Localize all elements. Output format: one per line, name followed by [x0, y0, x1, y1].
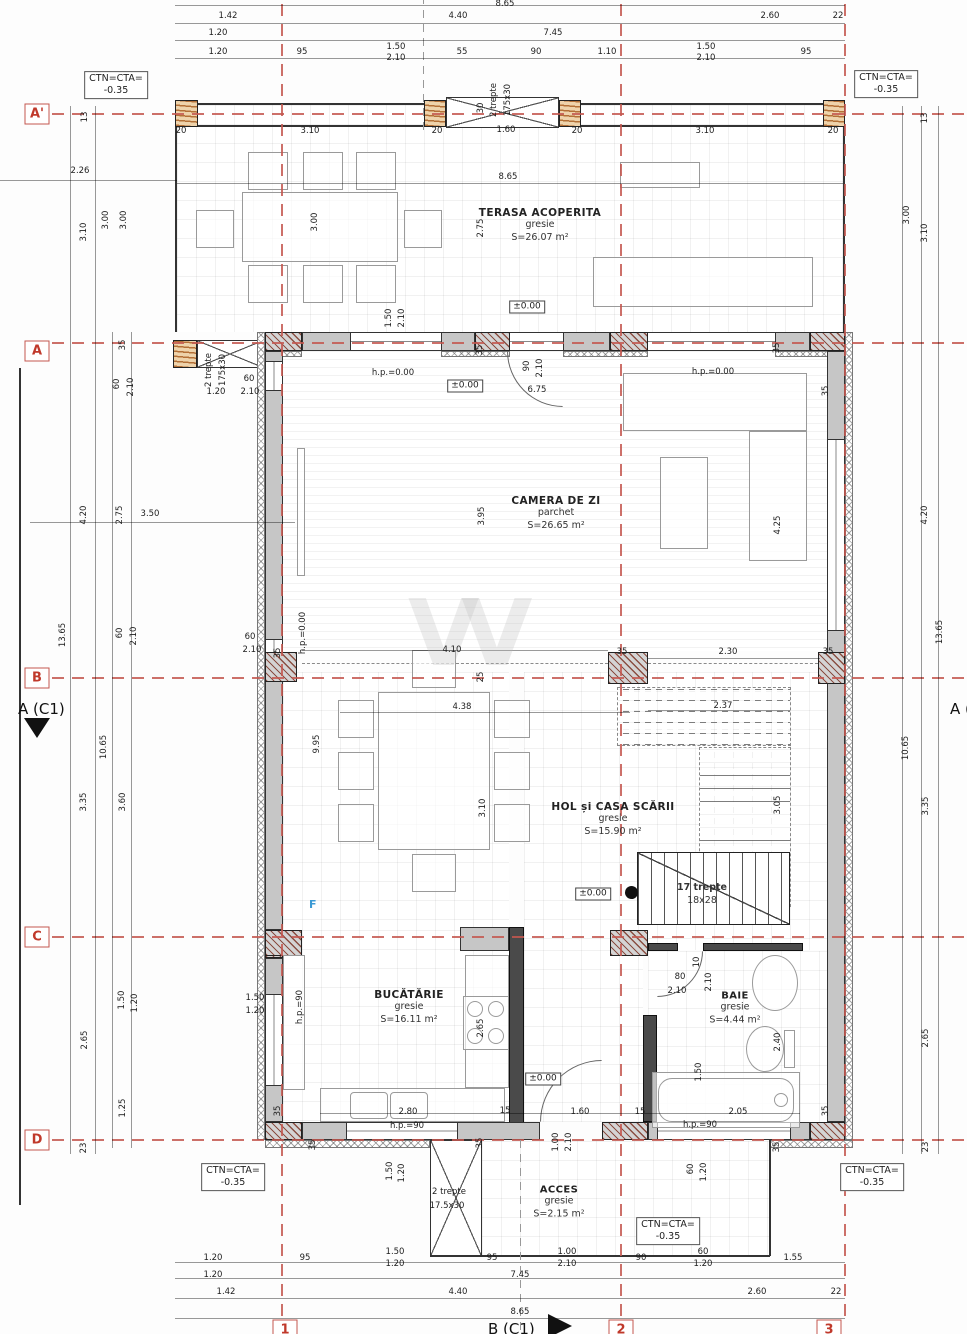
- floor-access: [482, 1141, 769, 1255]
- chair: [404, 210, 442, 248]
- wall-pier: [602, 1122, 648, 1140]
- chair: [338, 804, 374, 842]
- dim-label: 30: [477, 103, 486, 114]
- insulation-strip: [563, 351, 648, 357]
- section-marker-right: A (C1): [950, 700, 967, 718]
- terrace-table: [242, 192, 398, 262]
- dim-line: [648, 658, 820, 659]
- dim-label: 35: [309, 1140, 318, 1151]
- insulation-strip: [770, 1140, 853, 1148]
- dim-label: 2.10: [127, 378, 136, 397]
- dim-label: 2.60: [761, 12, 780, 21]
- dim-line: [175, 23, 845, 24]
- dim-label: 2.10: [536, 359, 545, 378]
- dim-label: 1.42: [217, 1288, 236, 1297]
- dim-line: [340, 712, 630, 713]
- dim-label: 55: [457, 48, 468, 57]
- insulation-strip: [265, 1140, 430, 1148]
- dim-label: 3.95: [478, 507, 487, 526]
- dim-label: 20: [432, 127, 443, 136]
- frame-line: [19, 368, 21, 1205]
- dim-label: 2 trepte: [432, 1188, 466, 1197]
- bath-wall: [648, 943, 678, 951]
- dim-label: 2.65: [922, 1029, 931, 1048]
- dim-line: [902, 106, 903, 1154]
- dim-label: 3.10: [696, 127, 715, 136]
- dim-label: 2.10: [565, 1133, 574, 1152]
- dim-label: 13: [921, 113, 930, 124]
- chair: [196, 210, 234, 248]
- room-label-hall: HOL și CASA SCĂRII gresie S=15.90 m²: [551, 801, 674, 839]
- dim-line: [95, 106, 96, 1154]
- burner: [488, 1028, 504, 1044]
- burner: [488, 1001, 504, 1017]
- level-box-top-right: CTN=CTA=-0.35: [854, 70, 918, 98]
- dim-label: 60: [116, 628, 125, 639]
- dim-label: 2.10: [130, 627, 139, 646]
- window: [827, 440, 845, 630]
- dim-label: 1.20: [386, 1260, 405, 1269]
- wood-post: [173, 340, 197, 368]
- axis-marker-c: C: [25, 927, 50, 948]
- dim-label: 2.10: [705, 973, 714, 992]
- dim-label: 3.00: [903, 206, 912, 225]
- wall-pier: [608, 652, 648, 684]
- room-label-kitchen: BUCĂTĂRIE gresie S=16.11 m²: [374, 989, 444, 1027]
- dim-label: 2.26: [71, 167, 90, 176]
- dim-label: 1.50: [118, 991, 127, 1010]
- section-arrow-left: [24, 718, 50, 738]
- dim-label: 1.10: [598, 48, 617, 57]
- dim-label: 3.50: [141, 510, 160, 519]
- dim-label: 7.45: [544, 29, 563, 38]
- dim-label: 1.50: [387, 43, 406, 52]
- dim-label: 1.20: [204, 1254, 223, 1263]
- wall-segment: [302, 1122, 347, 1140]
- dim-label: 13.65: [936, 620, 945, 644]
- toilet-tank: [784, 1030, 795, 1068]
- dim-line: [175, 40, 845, 41]
- dim-label: 35: [773, 343, 782, 354]
- section-marker-bottom: B (C1): [488, 1320, 535, 1334]
- insulation-strip: [257, 332, 265, 1140]
- dim-label: 1.20: [398, 1164, 407, 1183]
- dim-label: 22: [831, 1288, 842, 1297]
- dim-label: 2.10: [558, 1260, 577, 1269]
- dim-label: 3.35: [80, 793, 89, 812]
- room-label-bath: BAIE gresie S=4.44 m²: [709, 991, 760, 1028]
- dim-label: 1.20: [246, 1007, 265, 1016]
- dim-label: 3.60: [119, 793, 128, 812]
- dim-label: 1.42: [219, 12, 238, 21]
- dim-label: 3.00: [102, 211, 111, 230]
- dim-label: 4.40: [449, 1288, 468, 1297]
- dim-label: 90: [531, 48, 542, 57]
- dim-label: 17.5x30: [430, 1202, 465, 1211]
- dim-label: 2.40: [774, 1033, 783, 1052]
- porch-edge-right: [769, 1140, 771, 1256]
- dim-label: 35: [823, 648, 834, 657]
- dim-label: 4.40: [449, 12, 468, 21]
- dim-line: [921, 106, 922, 1154]
- section-arrow-bottom: [548, 1314, 572, 1334]
- dim-label: 2.37: [714, 702, 733, 711]
- wall-segment: [827, 630, 845, 1122]
- watermark: VV: [408, 580, 514, 687]
- axis-marker-d: D: [25, 1130, 50, 1151]
- floor-plan-canvas: VV: [0, 0, 967, 1334]
- dim-label: 35: [476, 1138, 485, 1149]
- wall-pier: [460, 927, 509, 951]
- dim-label: 4.38: [453, 703, 472, 712]
- chair: [494, 752, 530, 790]
- dim-label: 2.75: [116, 506, 125, 525]
- room-label-access: ACCES gresie S=2.15 m²: [533, 1185, 584, 1222]
- dim-label: 13: [81, 112, 90, 123]
- level-label: ±0.00: [525, 1073, 561, 1086]
- axis-line-3: [844, 0, 846, 1316]
- dim-label: 1.50: [695, 1063, 704, 1082]
- dim-label: 2.60: [748, 1288, 767, 1297]
- dining-table: [378, 692, 490, 850]
- axis-marker-1: 1: [273, 1320, 298, 1334]
- dashed-guide: [520, 1140, 521, 1330]
- dim-label: 35: [274, 648, 283, 659]
- access-steps: [430, 1140, 482, 1256]
- chair: [303, 265, 343, 303]
- chair: [338, 752, 374, 790]
- dim-label: 2.10: [387, 54, 406, 63]
- dim-label: 60: [245, 633, 256, 642]
- dim-label: h.p.=90: [296, 990, 305, 1024]
- dim-line: [70, 106, 71, 1154]
- dim-label: 90: [523, 361, 532, 372]
- dim-label: 13.65: [59, 623, 68, 647]
- dim-label: 1.25: [119, 1099, 128, 1118]
- dim-label: 80: [675, 973, 686, 982]
- dim-line: [175, 58, 845, 59]
- wall-pier: [610, 930, 648, 956]
- axis-line-c: [52, 936, 967, 938]
- dim-label: 90: [636, 1254, 647, 1263]
- dashed-guide: [423, 0, 424, 130]
- dim-label: 20: [828, 127, 839, 136]
- dim-label: 10.65: [902, 736, 911, 760]
- dim-label: 1.55: [784, 1254, 803, 1263]
- dim-label: 2.75: [477, 219, 486, 238]
- dim-label: 8.65: [496, 0, 515, 8]
- dim-line: [0, 180, 177, 181]
- dim-label: 95: [487, 1254, 498, 1263]
- dim-label: 8.65: [511, 1308, 530, 1317]
- dim-label: h.p.=90: [683, 1121, 717, 1130]
- porch-edge-bottom: [430, 1255, 770, 1257]
- axis-marker-b: B: [25, 668, 50, 689]
- dim-label: 20: [572, 127, 583, 136]
- dim-label: 3.05: [774, 796, 783, 815]
- dim-label: 4.20: [921, 506, 930, 525]
- dim-label: 35: [773, 1142, 782, 1153]
- dim-label: h.p.=0.00: [372, 369, 414, 378]
- dim-label: 23: [922, 1142, 931, 1153]
- dim-label: 35: [617, 648, 628, 657]
- terrace-sofa: [593, 257, 813, 307]
- dim-label: 2.10: [398, 309, 407, 328]
- dim-line: [175, 1262, 845, 1263]
- dim-label: 2 trepte: [205, 353, 214, 387]
- dim-label: 1.20: [207, 388, 226, 397]
- room-label-terrace: TERASA ACOPERITA gresie S=26.07 m²: [479, 207, 601, 245]
- wall-pier: [265, 1122, 302, 1140]
- dim-label: 25: [477, 672, 486, 683]
- dim-label: 1.20: [694, 1260, 713, 1269]
- level-box-bottom-center: CTN=CTA=-0.35: [636, 1217, 700, 1245]
- dim-label: 2.65: [81, 1031, 90, 1050]
- bath-wall: [703, 943, 803, 951]
- dim-label: 175x30: [504, 84, 513, 116]
- room-label-living: CAMERA DE ZI parchet S=26.65 m²: [511, 495, 600, 533]
- dim-label: 3.10: [80, 223, 89, 242]
- level-box-top-left: CTN=CTA=-0.35: [84, 71, 148, 99]
- dim-label: 3.10: [479, 799, 488, 818]
- dim-label: 22: [833, 12, 844, 21]
- level-box-bottom-left: CTN=CTA=-0.35: [201, 1163, 265, 1191]
- tv-unit: [297, 448, 305, 576]
- chair: [494, 804, 530, 842]
- stairs-upper-dashed: [618, 688, 790, 745]
- dim-label: 1.20: [209, 48, 228, 57]
- dim-label: 3.10: [301, 127, 320, 136]
- dim-line: [175, 1298, 845, 1299]
- dim-label: 2.80: [399, 1108, 418, 1117]
- dim-line: [131, 332, 132, 1148]
- coffee-table: [660, 457, 708, 549]
- axis-line-d: [52, 1139, 967, 1141]
- dim-label: 2.10: [241, 388, 260, 397]
- wall-pier: [810, 1122, 845, 1140]
- dim-line: [112, 332, 113, 1148]
- chair: [412, 854, 456, 892]
- terrace-coffee-table: [620, 162, 700, 188]
- axis-line-a: [52, 342, 967, 344]
- dim-label: 60: [113, 379, 122, 390]
- dim-label: 1.00: [558, 1248, 577, 1257]
- stair-note: 17 trepte 18x28: [677, 882, 727, 908]
- sofa: [623, 373, 807, 431]
- dim-label: 2.05: [729, 1108, 748, 1117]
- dim-label: 1.50: [386, 1248, 405, 1257]
- level-label: ±0.00: [575, 888, 611, 901]
- axis-marker-a-prime: A': [25, 104, 50, 125]
- dim-label: 1.50: [246, 994, 265, 1003]
- wall-divider: [509, 927, 524, 1133]
- level-label: ±0.00: [509, 301, 545, 314]
- dim-label: 4.25: [774, 516, 783, 535]
- dim-label: 2.10: [243, 646, 262, 655]
- axis-line-2: [620, 0, 622, 1316]
- dim-label: 8.65: [499, 173, 518, 182]
- insulation-strip: [845, 332, 853, 1140]
- dim-label: 3.00: [311, 213, 320, 232]
- stair-post-dot: [625, 886, 638, 899]
- dim-label: 15: [500, 1107, 511, 1116]
- dim-label: 35: [822, 386, 831, 397]
- dim-label: 175x30: [219, 354, 228, 386]
- dim-label: 3.35: [922, 797, 931, 816]
- dim-label: 1.20: [131, 994, 140, 1013]
- dim-label: 1.60: [497, 126, 516, 135]
- dim-label: 3.00: [120, 211, 129, 230]
- dim-label: 2.10: [697, 54, 716, 63]
- bathtub-drain: [774, 1093, 788, 1107]
- beam-over-opening: [648, 663, 818, 664]
- terrace-edge-left: [175, 103, 177, 332]
- dim-label: 2 trepte: [490, 83, 499, 117]
- dim-label: 7.45: [511, 1271, 530, 1280]
- dim-label: 95: [297, 48, 308, 57]
- dim-label: 23: [80, 1143, 89, 1154]
- burner: [467, 1001, 483, 1017]
- chair: [356, 152, 396, 190]
- chair: [494, 700, 530, 738]
- dim-label: 1.50: [386, 1162, 395, 1181]
- dim-label: 15: [635, 1108, 646, 1117]
- dim-label: 20: [176, 127, 187, 136]
- dim-label: 4.20: [80, 506, 89, 525]
- axis-marker-3: 3: [817, 1320, 842, 1334]
- dim-label: 1.20: [700, 1163, 709, 1182]
- dim-label: 2.65: [477, 1019, 486, 1038]
- dim-label: 10: [693, 957, 702, 968]
- dim-label: 35: [476, 345, 485, 356]
- dim-label: h.p.=90: [390, 1122, 424, 1131]
- dim-label: 95: [801, 48, 812, 57]
- f-marker: F: [309, 898, 317, 911]
- wall-segment: [457, 1122, 540, 1140]
- dim-label: 6.75: [528, 386, 547, 395]
- chair: [338, 700, 374, 738]
- level-label: ±0.00: [447, 380, 483, 393]
- kitchen-sink: [350, 1092, 388, 1119]
- axis-marker-a: A: [25, 341, 50, 362]
- dim-label: 60: [698, 1248, 709, 1257]
- wall-pier: [818, 652, 845, 684]
- chair: [356, 265, 396, 303]
- dim-label: 60: [687, 1164, 696, 1175]
- dim-label: 60: [244, 375, 255, 384]
- dim-label: 1.00: [552, 1133, 561, 1152]
- dim-label: 95: [300, 1254, 311, 1263]
- dim-label: 35: [119, 340, 128, 351]
- dim-label: 35: [822, 1106, 831, 1117]
- dim-label: 1.50: [697, 43, 716, 52]
- dim-label: h.p.=0.00: [692, 368, 734, 377]
- axis-marker-2: 2: [609, 1320, 634, 1334]
- wall-pier: [265, 930, 302, 956]
- dim-label: 1.50: [385, 309, 394, 328]
- dim-label: 4.10: [443, 646, 462, 655]
- dim-label: 1.60: [571, 1108, 590, 1117]
- dim-label: h.p.=0.00: [299, 612, 308, 654]
- dim-line: [30, 522, 295, 523]
- dim-label: 2.30: [719, 648, 738, 657]
- dim-label: 35: [274, 1106, 283, 1117]
- dim-label: 2.10: [668, 987, 687, 996]
- dim-label: 1.20: [209, 29, 228, 38]
- dim-label: 1.20: [204, 1271, 223, 1280]
- dim-line: [177, 183, 843, 184]
- level-box-bottom-right: CTN=CTA=-0.35: [840, 1163, 904, 1191]
- dim-label: 3.10: [921, 224, 930, 243]
- section-marker-left: A (C1): [18, 700, 65, 718]
- chair: [303, 152, 343, 190]
- dim-label: 10.65: [100, 735, 109, 759]
- sofa: [749, 431, 807, 561]
- dim-label: 9.95: [313, 735, 322, 754]
